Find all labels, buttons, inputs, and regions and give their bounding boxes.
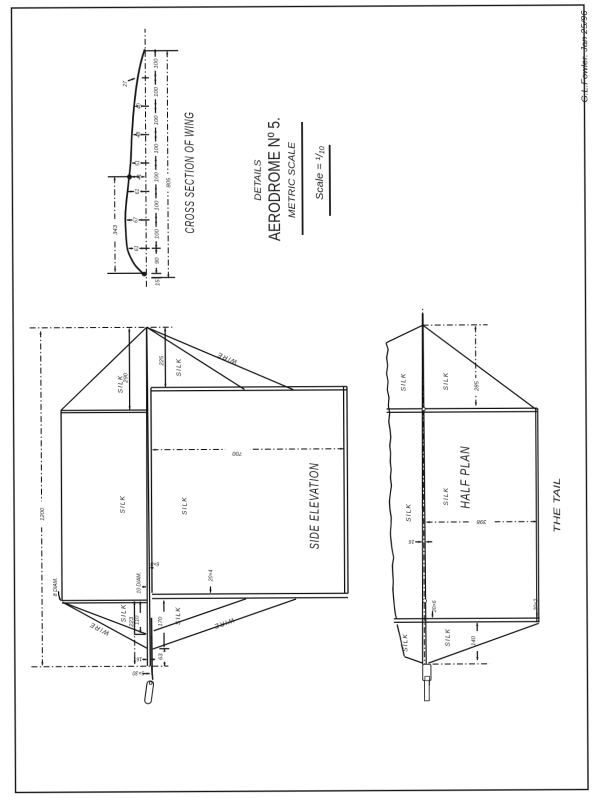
svg-text:SILK: SILK: [402, 633, 409, 652]
svg-text:SILK: SILK: [401, 373, 408, 392]
svg-text:290: 290: [123, 372, 129, 384]
svg-text:20×4: 20×4: [209, 569, 215, 582]
svg-text:SILK: SILK: [405, 503, 412, 522]
svg-text:SILK: SILK: [443, 487, 450, 506]
svg-text:51: 51: [135, 160, 141, 166]
svg-text:SILK: SILK: [117, 375, 124, 394]
svg-text:170: 170: [158, 616, 164, 627]
svg-text:THE TAIL: THE TAIL: [552, 478, 563, 533]
svg-text:15: 15: [155, 279, 161, 286]
svg-text:100: 100: [154, 143, 160, 154]
svg-text:40: 40: [136, 103, 142, 109]
svg-text:285: 285: [474, 380, 480, 392]
svg-text:100: 100: [154, 171, 160, 182]
svg-text:61: 61: [135, 188, 141, 194]
svg-text:90: 90: [155, 257, 161, 264]
svg-text:20×2: 20×2: [533, 599, 539, 612]
svg-text:398: 398: [476, 518, 487, 524]
svg-text:1200: 1200: [40, 507, 46, 521]
svg-text:16: 16: [409, 538, 415, 544]
svg-text:6×8: 6×8: [150, 560, 159, 566]
svg-text:AERODROME Nº 5.: AERODROME Nº 5.: [265, 117, 285, 241]
svg-text:SILK: SILK: [119, 495, 126, 514]
svg-text:100: 100: [154, 58, 160, 69]
svg-text:DETAILS: DETAILS: [253, 160, 263, 201]
svg-text:100: 100: [154, 200, 160, 211]
svg-text:SILK: SILK: [443, 372, 450, 391]
svg-text:METRIC SCALE: METRIC SCALE: [287, 141, 298, 218]
svg-text:700: 700: [232, 450, 243, 456]
svg-text:100: 100: [154, 228, 160, 239]
svg-text:SILK: SILK: [176, 358, 183, 377]
svg-text:225: 225: [159, 355, 165, 367]
svg-text:SILK: SILK: [175, 606, 182, 625]
svg-text:SILK: SILK: [445, 628, 452, 647]
svg-text:CROSS SECTION OF WING: CROSS SECTION OF WING: [181, 112, 197, 234]
svg-text:SIDE ELEVATION: SIDE ELEVATION: [306, 462, 321, 549]
svg-text:20×6: 20×6: [432, 600, 438, 613]
svg-text:HALF PLAN: HALF PLAN: [457, 446, 472, 509]
svg-text:41: 41: [137, 174, 143, 180]
svg-text:100: 100: [154, 86, 160, 97]
svg-text:5×30: 5×30: [132, 670, 144, 676]
svg-text:SILK: SILK: [120, 604, 127, 623]
svg-text:10 DIAM.: 10 DIAM.: [137, 572, 143, 594]
svg-text:805: 805: [166, 177, 172, 188]
svg-text:100: 100: [154, 115, 160, 126]
svg-text:SILK: SILK: [182, 496, 189, 515]
svg-text:G.L.Fowler. Jan 25/96: G.L.Fowler. Jan 25/96: [580, 10, 589, 103]
svg-text:63: 63: [158, 653, 164, 660]
svg-text:110: 110: [135, 615, 141, 625]
svg-text:140: 140: [471, 635, 477, 646]
svg-text:343: 343: [113, 224, 119, 235]
svg-text:61: 61: [134, 245, 140, 251]
svg-text:48: 48: [136, 132, 142, 138]
svg-text:Scale = ¹/₁₀: Scale = ¹/₁₀: [314, 145, 326, 200]
svg-text:16: 16: [136, 655, 142, 661]
